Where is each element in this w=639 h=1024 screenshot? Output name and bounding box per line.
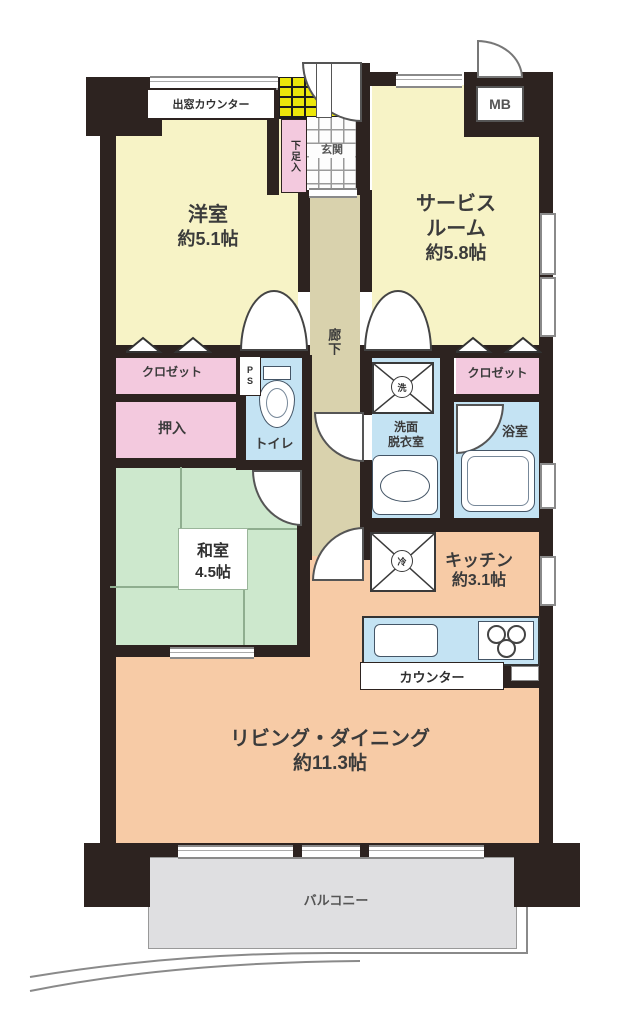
- refrigerator-label-chip: 冷: [391, 550, 413, 572]
- japanese-room-label-box: 和室 4.5帖: [178, 528, 248, 590]
- closet-right-label: クロゼット: [456, 366, 539, 381]
- corridor-label: 廊下: [325, 328, 341, 356]
- entrance-label-wrap: 玄関: [309, 144, 355, 158]
- kitchen-name: キッチン: [420, 550, 538, 571]
- living-balcony-window: [178, 845, 484, 859]
- shoe-cabinet-box: 下足入: [281, 119, 307, 193]
- service-room-size: 約5.8帖: [400, 242, 512, 265]
- counter-box: カウンター: [360, 662, 504, 690]
- bay-window-counter-box: 出窓カウンター: [146, 88, 276, 120]
- kitchen-size: 約3.1帖: [420, 571, 538, 591]
- service-room-top-window: [396, 74, 462, 88]
- closet-left-door-icon: [126, 336, 212, 354]
- kitchen-sink-icon: [374, 624, 438, 657]
- living-dining-size: 約11.3帖: [180, 752, 480, 776]
- service-room-name-2: ルーム: [400, 217, 512, 242]
- corridor-area: [310, 193, 360, 560]
- washroom-name-1: 洗面: [372, 420, 440, 435]
- washitsu-bottom-window: [170, 647, 254, 659]
- tatami-line: [180, 467, 182, 529]
- toilet-bowl-inner-icon: [266, 388, 288, 418]
- genkan-step: [309, 188, 357, 198]
- balcony-window-mullion-2: [360, 845, 369, 857]
- wall-left: [100, 77, 116, 867]
- wall-top-service: [368, 72, 398, 86]
- kitchen-side-window: [540, 556, 556, 606]
- wall-closet-oshiire-divider: [108, 394, 238, 402]
- entrance-door-leaf-icon: [316, 63, 332, 118]
- wall-wash-bath-divider: [440, 352, 454, 530]
- balcony-label: バルコニー: [281, 893, 391, 909]
- balcony-window-mullion-1: [293, 845, 302, 857]
- living-dining-name: リビング・ダイニング: [180, 727, 480, 752]
- service-room-side-window-1: [540, 213, 556, 275]
- vent-icon: [511, 666, 539, 681]
- floor-plan: 洗 冷 出窓カウンター MB 下足入 PS カウンター 和室 4.5帖 玄関 洋…: [0, 0, 639, 1024]
- wall-closetR-bath-divider: [453, 394, 539, 402]
- service-room-name-1: サービス: [400, 192, 512, 217]
- living-dining-label: リビング・ダイニング 約11.3帖: [180, 727, 480, 776]
- pipe-space-label: PS: [245, 365, 255, 387]
- bathroom-label: 浴室: [490, 424, 540, 440]
- western-room-label: 洋室 約5.1帖: [148, 203, 268, 251]
- stove-burner-icon: [497, 639, 516, 658]
- oshiire-label: 押入: [110, 420, 234, 438]
- service-room-label: サービス ルーム 約5.8帖: [400, 192, 512, 265]
- refrigerator-label: 冷: [397, 555, 406, 568]
- washstand-basin-icon: [380, 470, 430, 502]
- toilet-tank-icon: [263, 366, 291, 380]
- wall-corridor-right-upper: [360, 190, 372, 292]
- washroom-label: 洗面 脱衣室: [372, 420, 440, 450]
- shoe-cabinet-label: 下足入: [287, 140, 302, 173]
- washer-label-chip: 洗: [391, 376, 413, 398]
- meter-box: MB: [476, 86, 524, 122]
- service-room-side-window-2: [540, 277, 556, 337]
- washer-label: 洗: [397, 381, 406, 394]
- wall-kitchen-top: [360, 518, 553, 532]
- toilet-label: トイレ: [246, 436, 302, 452]
- closet-right-door-icon: [456, 336, 542, 354]
- western-room-size: 約5.1帖: [148, 228, 268, 251]
- meter-box-label: MB: [489, 96, 511, 112]
- bathroom-side-window: [540, 463, 556, 509]
- wall-corridor-right-mid: [360, 350, 372, 415]
- japanese-room-size: 4.5帖: [195, 561, 231, 582]
- kitchen-label: キッチン 約3.1帖: [420, 550, 538, 591]
- meter-box-door-swing-icon: [477, 40, 523, 78]
- tatami-line: [243, 586, 245, 645]
- closet-left-label: クロゼット: [110, 365, 234, 380]
- western-room-name: 洋室: [148, 203, 268, 228]
- counter-label: カウンター: [399, 667, 464, 686]
- wall-corridor-left-upper: [298, 190, 310, 292]
- wall-oshiire-bottom: [100, 458, 238, 468]
- japanese-room-name: 和室: [197, 537, 229, 561]
- pipe-space-box: PS: [239, 356, 261, 396]
- bathtub-inner-icon: [467, 456, 529, 506]
- corridor-label-text: 廊下: [326, 328, 341, 356]
- washroom-name-2: 脱衣室: [372, 435, 440, 450]
- entrance-label: 玄関: [321, 144, 343, 156]
- bay-window-counter-label: 出窓カウンター: [173, 96, 250, 112]
